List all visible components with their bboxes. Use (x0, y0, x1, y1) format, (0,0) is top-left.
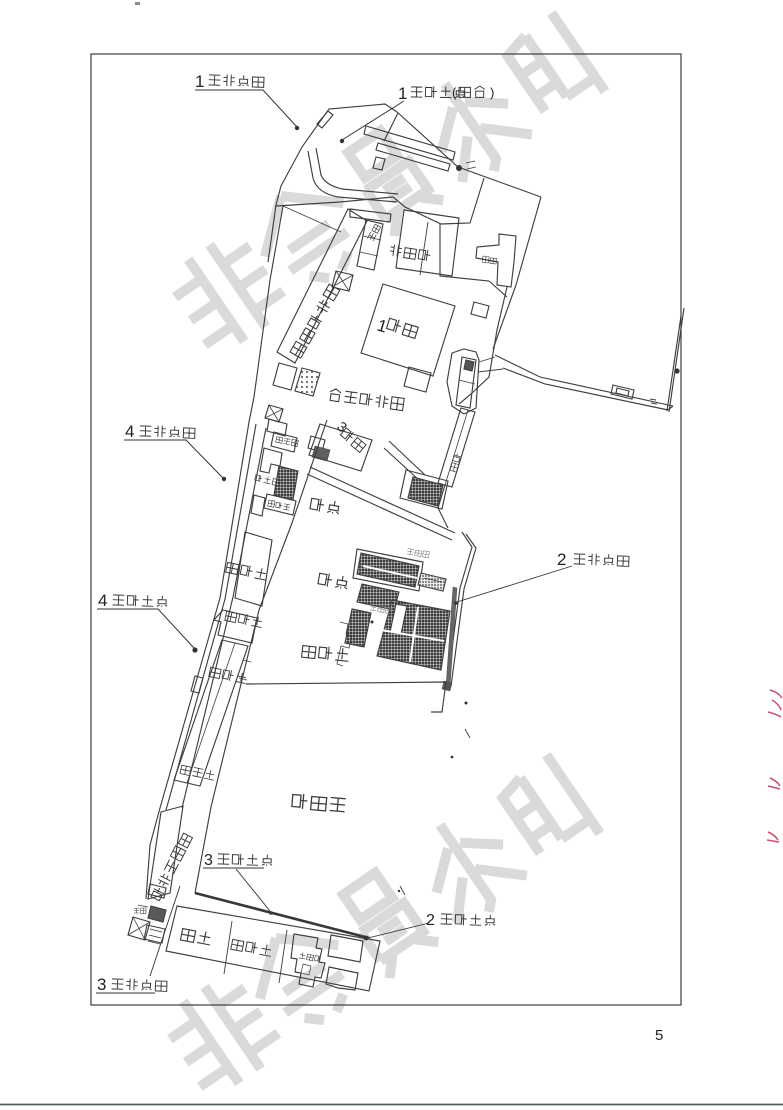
svg-text:3: 3 (97, 975, 106, 994)
svg-text:2: 2 (557, 550, 566, 569)
svg-text:4: 4 (125, 422, 134, 441)
svg-text:3: 3 (204, 852, 213, 869)
svg-text:2: 2 (426, 912, 435, 929)
svg-text:): ) (490, 85, 494, 100)
svg-text:5: 5 (655, 1027, 663, 1044)
svg-text:4: 4 (98, 591, 107, 610)
svg-text:1: 1 (398, 84, 407, 103)
svg-text:1: 1 (195, 72, 204, 91)
svg-text:(: ( (452, 85, 457, 100)
